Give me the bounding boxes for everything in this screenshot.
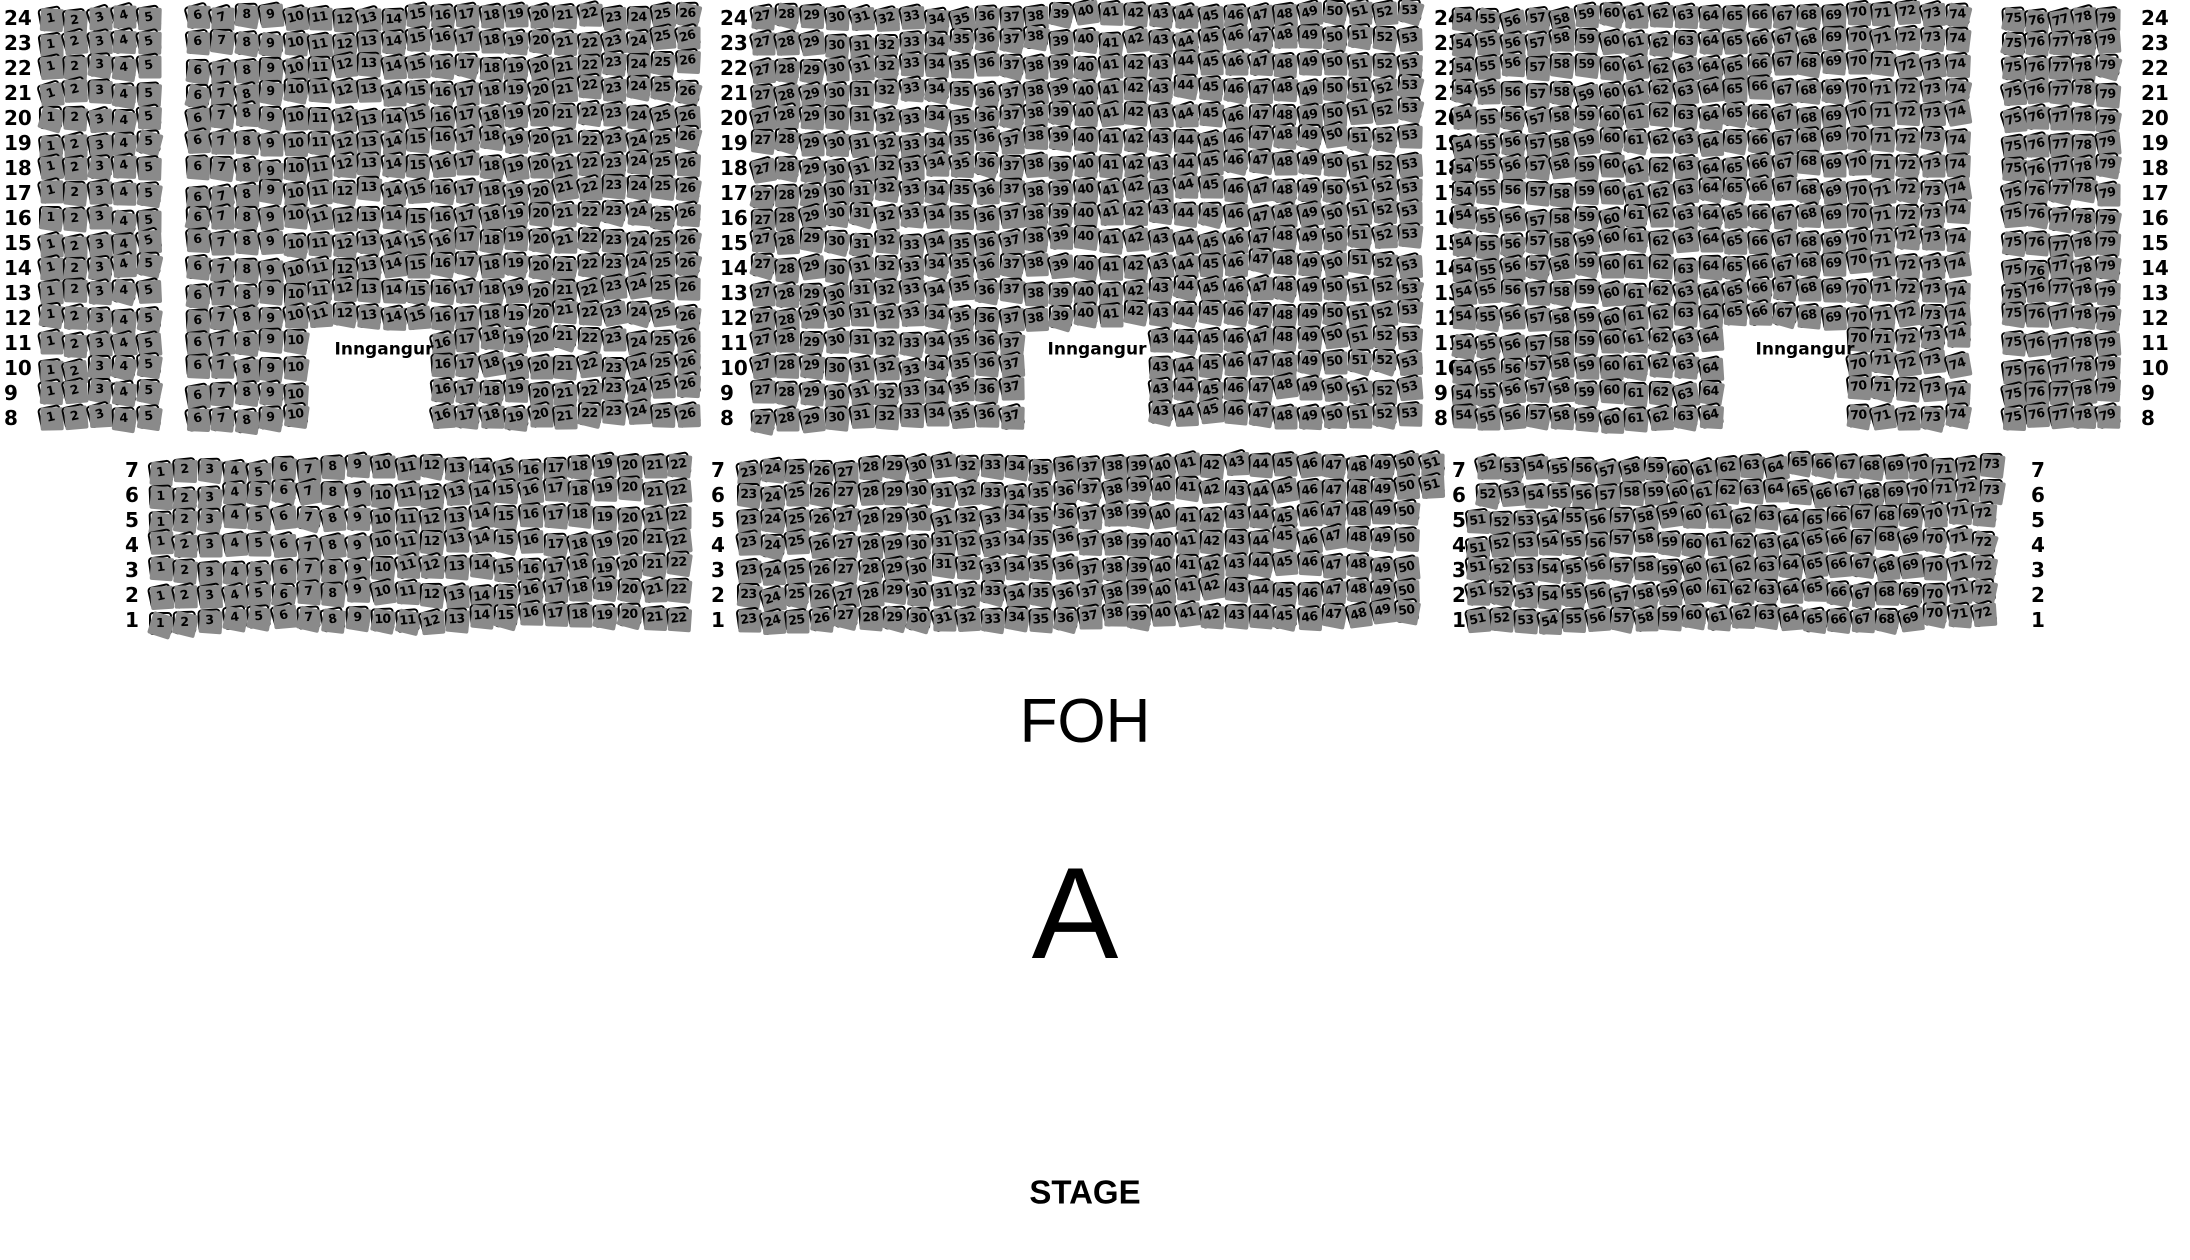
seat[interactable]: 53 bbox=[1397, 298, 1423, 324]
seat[interactable]: 1 bbox=[147, 555, 173, 581]
seat[interactable]: 44 bbox=[1172, 49, 1198, 75]
seat[interactable]: 73 bbox=[1918, 0, 1947, 28]
seat[interactable]: 74 bbox=[1944, 379, 1970, 405]
seat[interactable]: 17 bbox=[452, 123, 481, 152]
seat[interactable]: 40 bbox=[1149, 474, 1176, 501]
seat[interactable]: 24 bbox=[624, 199, 651, 226]
seat[interactable]: 17 bbox=[541, 576, 568, 603]
seat[interactable]: 6 bbox=[183, 405, 211, 433]
seat[interactable]: 28 bbox=[856, 479, 883, 506]
seat[interactable]: 10 bbox=[283, 156, 306, 179]
seat[interactable]: 19 bbox=[503, 56, 528, 81]
seat[interactable]: 79 bbox=[2094, 254, 2120, 280]
seat[interactable]: 42 bbox=[1122, 199, 1148, 225]
seat[interactable]: 49 bbox=[1296, 148, 1323, 175]
seat[interactable]: 24 bbox=[626, 300, 650, 324]
seat[interactable]: 62 bbox=[1646, 403, 1675, 432]
seat[interactable]: 11 bbox=[307, 231, 333, 257]
seat[interactable]: 78 bbox=[2071, 78, 2096, 103]
seat[interactable]: 23 bbox=[601, 399, 625, 423]
seat[interactable]: 37 bbox=[1077, 455, 1102, 480]
seat[interactable]: 46 bbox=[1222, 350, 1249, 377]
seat[interactable]: 78 bbox=[2072, 177, 2096, 201]
seat[interactable]: 27 bbox=[832, 503, 860, 531]
seat[interactable]: 26 bbox=[675, 228, 700, 253]
seat[interactable]: 35 bbox=[947, 274, 975, 302]
seat[interactable]: 48 bbox=[1272, 149, 1299, 176]
seat[interactable]: 25 bbox=[651, 329, 675, 353]
seat[interactable]: 45 bbox=[1271, 549, 1299, 577]
seat[interactable]: 77 bbox=[2048, 380, 2073, 405]
seat[interactable]: 25 bbox=[784, 608, 810, 634]
seat[interactable]: 47 bbox=[1247, 350, 1273, 376]
seat[interactable]: 6 bbox=[184, 254, 210, 280]
seat[interactable]: 65 bbox=[1801, 575, 1829, 603]
seat[interactable]: 28 bbox=[773, 228, 801, 256]
seat[interactable]: 56 bbox=[1501, 179, 1525, 203]
seat[interactable]: 11 bbox=[306, 5, 332, 31]
seat[interactable]: 48 bbox=[1273, 275, 1297, 299]
seat[interactable]: 21 bbox=[553, 325, 576, 348]
seat[interactable]: 59 bbox=[1643, 457, 1666, 480]
seat[interactable]: 50 bbox=[1393, 553, 1421, 581]
seat[interactable]: 22 bbox=[667, 578, 691, 602]
seat[interactable]: 69 bbox=[1882, 453, 1909, 480]
seat[interactable]: 16 bbox=[517, 527, 544, 554]
seat[interactable]: 4 bbox=[221, 480, 247, 506]
seat[interactable]: 36 bbox=[973, 50, 999, 76]
seat[interactable]: 36 bbox=[974, 378, 998, 402]
seat[interactable]: 67 bbox=[1849, 606, 1876, 633]
seat[interactable]: 60 bbox=[1598, 327, 1624, 353]
seat[interactable]: 24 bbox=[758, 559, 786, 587]
seat[interactable]: 73 bbox=[1918, 150, 1946, 178]
seat[interactable]: 59 bbox=[1574, 252, 1598, 276]
seat[interactable]: 30 bbox=[824, 405, 849, 430]
seat[interactable]: 77 bbox=[2046, 330, 2074, 358]
seat[interactable]: 9 bbox=[258, 280, 283, 305]
seat[interactable]: 49 bbox=[1296, 78, 1324, 106]
seat[interactable]: 45 bbox=[1197, 48, 1224, 75]
seat[interactable]: 63 bbox=[1674, 104, 1697, 127]
seat[interactable]: 72 bbox=[1895, 127, 1920, 152]
seat[interactable]: 43 bbox=[1148, 301, 1173, 326]
seat[interactable]: 78 bbox=[2072, 208, 2096, 232]
seat[interactable]: 41 bbox=[1098, 127, 1123, 152]
seat[interactable]: 29 bbox=[882, 605, 906, 629]
seat[interactable]: 14 bbox=[469, 457, 494, 482]
seat[interactable]: 29 bbox=[882, 479, 907, 504]
seat[interactable]: 2 bbox=[62, 106, 86, 130]
seat[interactable]: 26 bbox=[807, 532, 835, 560]
seat[interactable]: 4 bbox=[109, 329, 138, 358]
seat[interactable]: 68 bbox=[1875, 607, 1898, 630]
seat[interactable]: 56 bbox=[1584, 581, 1612, 609]
seat[interactable]: 54 bbox=[1537, 584, 1561, 608]
seat[interactable]: 26 bbox=[675, 125, 698, 148]
seat[interactable]: 9 bbox=[259, 57, 282, 80]
seat[interactable]: 77 bbox=[2046, 355, 2074, 383]
seat[interactable]: 12 bbox=[420, 583, 443, 606]
seat[interactable]: 43 bbox=[1147, 101, 1173, 127]
seat[interactable]: 43 bbox=[1224, 528, 1248, 552]
seat[interactable]: 40 bbox=[1073, 302, 1098, 327]
seat[interactable]: 27 bbox=[749, 378, 775, 404]
seat[interactable]: 42 bbox=[1122, 126, 1148, 152]
seat[interactable]: 9 bbox=[344, 576, 372, 604]
seat[interactable]: 35 bbox=[1028, 554, 1054, 580]
seat[interactable]: 49 bbox=[1296, 223, 1324, 251]
seat[interactable]: 26 bbox=[674, 48, 700, 74]
seat[interactable]: 40 bbox=[1072, 100, 1099, 127]
seat[interactable]: 49 bbox=[1296, 402, 1323, 429]
seat[interactable]: 11 bbox=[393, 528, 420, 555]
seat[interactable]: 77 bbox=[2046, 402, 2074, 430]
seat[interactable]: 21 bbox=[551, 200, 578, 227]
seat[interactable]: 4 bbox=[222, 560, 246, 584]
seat[interactable]: 20 bbox=[526, 76, 555, 105]
seat[interactable]: 51 bbox=[1346, 98, 1374, 126]
seat[interactable]: 44 bbox=[1248, 452, 1273, 477]
seat[interactable]: 58 bbox=[1548, 403, 1575, 430]
seat[interactable]: 74 bbox=[1945, 402, 1970, 427]
seat[interactable]: 55 bbox=[1475, 382, 1499, 406]
seat[interactable]: 39 bbox=[1048, 53, 1074, 79]
seat[interactable]: 32 bbox=[875, 404, 899, 428]
seat[interactable]: 58 bbox=[1548, 25, 1576, 53]
seat[interactable]: 23 bbox=[602, 200, 625, 223]
seat[interactable]: 28 bbox=[775, 156, 799, 180]
seat[interactable]: 59 bbox=[1574, 179, 1599, 204]
seat[interactable]: 71 bbox=[1931, 477, 1956, 502]
seat[interactable]: 5 bbox=[135, 4, 162, 31]
seat[interactable]: 75 bbox=[2000, 301, 2025, 326]
seat[interactable]: 2 bbox=[63, 181, 87, 205]
seat[interactable]: 64 bbox=[1698, 203, 1723, 228]
seat[interactable]: 34 bbox=[925, 105, 948, 128]
seat[interactable]: 47 bbox=[1247, 401, 1272, 426]
seat[interactable]: 22 bbox=[577, 227, 600, 250]
seat[interactable]: 37 bbox=[1076, 603, 1103, 630]
seat[interactable]: 51 bbox=[1346, 51, 1373, 78]
seat[interactable]: 31 bbox=[849, 278, 873, 302]
seat[interactable]: 30 bbox=[822, 129, 850, 157]
seat[interactable]: 15 bbox=[493, 478, 519, 504]
seat[interactable]: 57 bbox=[1524, 305, 1551, 332]
seat[interactable]: 34 bbox=[924, 31, 948, 55]
seat[interactable]: 52 bbox=[1475, 483, 1499, 507]
seat[interactable]: 37 bbox=[999, 27, 1023, 51]
seat[interactable]: 13 bbox=[444, 554, 469, 579]
seat[interactable]: 25 bbox=[650, 274, 676, 300]
seat[interactable]: 18 bbox=[479, 228, 503, 252]
seat[interactable]: 47 bbox=[1248, 124, 1271, 147]
seat[interactable]: 22 bbox=[577, 327, 600, 350]
seat[interactable]: 49 bbox=[1298, 124, 1321, 147]
seat[interactable]: 7 bbox=[210, 29, 233, 52]
seat[interactable]: 20 bbox=[617, 602, 641, 626]
seat[interactable]: 28 bbox=[857, 532, 884, 559]
seat[interactable]: 18 bbox=[478, 154, 503, 179]
seat[interactable]: 19 bbox=[501, 153, 529, 181]
seat[interactable]: 5 bbox=[246, 530, 272, 556]
seat[interactable]: 64 bbox=[1698, 176, 1723, 201]
seat[interactable]: 11 bbox=[393, 454, 420, 481]
seat[interactable]: 4 bbox=[111, 209, 135, 233]
seat[interactable]: 11 bbox=[306, 255, 334, 283]
seat[interactable]: 39 bbox=[1047, 251, 1075, 279]
seat[interactable]: 36 bbox=[975, 307, 998, 330]
seat[interactable]: 12 bbox=[330, 77, 358, 105]
seat[interactable]: 62 bbox=[1729, 577, 1755, 603]
seat[interactable]: 11 bbox=[307, 279, 332, 304]
seat[interactable]: 61 bbox=[1622, 102, 1649, 129]
seat[interactable]: 21 bbox=[640, 575, 669, 604]
seat[interactable]: 22 bbox=[576, 378, 603, 405]
seat[interactable]: 30 bbox=[825, 230, 849, 254]
seat[interactable]: 70 bbox=[1845, 373, 1871, 399]
seat[interactable]: 67 bbox=[1770, 151, 1798, 179]
seat[interactable]: 41 bbox=[1173, 450, 1201, 478]
seat[interactable]: 21 bbox=[552, 403, 578, 429]
seat[interactable]: 2 bbox=[61, 154, 88, 181]
seat[interactable]: 25 bbox=[649, 23, 677, 51]
seat[interactable]: 64 bbox=[1696, 28, 1723, 55]
seat[interactable]: 32 bbox=[873, 203, 900, 230]
seat[interactable]: 1 bbox=[36, 378, 63, 405]
seat[interactable]: 3 bbox=[197, 609, 221, 633]
seat[interactable]: 65 bbox=[1801, 606, 1828, 633]
seat[interactable]: 20 bbox=[617, 475, 642, 500]
seat[interactable]: 45 bbox=[1197, 149, 1224, 176]
seat[interactable]: 62 bbox=[1649, 381, 1672, 404]
seat[interactable]: 31 bbox=[930, 480, 956, 506]
seat[interactable]: 10 bbox=[282, 401, 308, 427]
seat[interactable]: 46 bbox=[1223, 300, 1248, 325]
seat[interactable]: 43 bbox=[1147, 198, 1173, 224]
seat[interactable]: 69 bbox=[1897, 552, 1925, 580]
seat[interactable]: 37 bbox=[999, 178, 1023, 202]
seat[interactable]: 5 bbox=[135, 155, 161, 181]
seat[interactable]: 69 bbox=[1896, 525, 1925, 554]
seat[interactable]: 1 bbox=[146, 583, 173, 610]
seat[interactable]: 37 bbox=[997, 351, 1025, 379]
seat[interactable]: 72 bbox=[1970, 577, 1996, 603]
seat[interactable]: 31 bbox=[930, 580, 957, 607]
seat[interactable]: 74 bbox=[1944, 197, 1969, 222]
seat[interactable]: 73 bbox=[1918, 251, 1947, 280]
seat[interactable]: 71 bbox=[1869, 275, 1896, 302]
seat[interactable]: 78 bbox=[2071, 355, 2096, 380]
seat[interactable]: 55 bbox=[1474, 356, 1502, 384]
seat[interactable]: 23 bbox=[735, 557, 762, 584]
seat[interactable]: 51 bbox=[1348, 249, 1372, 273]
seat[interactable]: 38 bbox=[1023, 226, 1048, 251]
seat[interactable]: 6 bbox=[185, 59, 208, 82]
seat[interactable]: 61 bbox=[1624, 406, 1649, 431]
seat[interactable]: 56 bbox=[1584, 507, 1611, 534]
seat[interactable]: 2 bbox=[61, 403, 88, 430]
seat[interactable]: 19 bbox=[591, 475, 618, 502]
seat[interactable]: 46 bbox=[1223, 177, 1248, 202]
seat[interactable]: 1 bbox=[147, 528, 174, 555]
seat[interactable]: 12 bbox=[331, 231, 358, 258]
seat[interactable]: 49 bbox=[1370, 499, 1396, 525]
seat[interactable]: 21 bbox=[641, 453, 667, 479]
seat[interactable]: 66 bbox=[1746, 275, 1773, 302]
seat[interactable]: 72 bbox=[1893, 51, 1922, 80]
seat[interactable]: 42 bbox=[1199, 506, 1224, 531]
seat[interactable]: 34 bbox=[923, 400, 949, 426]
seat[interactable]: 35 bbox=[948, 351, 975, 378]
seat[interactable]: 13 bbox=[357, 176, 381, 200]
seat[interactable]: 67 bbox=[1771, 77, 1798, 104]
seat[interactable]: 64 bbox=[1697, 303, 1722, 328]
seat[interactable]: 70 bbox=[1921, 500, 1950, 529]
seat[interactable]: 63 bbox=[1672, 2, 1699, 29]
seat[interactable]: 62 bbox=[1728, 602, 1756, 630]
seat[interactable]: 66 bbox=[1746, 252, 1773, 279]
seat[interactable]: 27 bbox=[834, 480, 858, 504]
seat[interactable]: 27 bbox=[748, 28, 776, 56]
seat[interactable]: 73 bbox=[1919, 202, 1945, 228]
seat[interactable]: 4 bbox=[110, 179, 137, 206]
seat[interactable]: 3 bbox=[197, 458, 221, 482]
seat[interactable]: 54 bbox=[1522, 482, 1548, 508]
seat[interactable]: 47 bbox=[1322, 603, 1346, 627]
seat[interactable]: 78 bbox=[2070, 401, 2098, 429]
seat[interactable]: 72 bbox=[1895, 327, 1921, 353]
seat[interactable]: 3 bbox=[87, 52, 112, 77]
seat[interactable]: 42 bbox=[1123, 76, 1147, 100]
seat[interactable]: 20 bbox=[616, 529, 643, 556]
seat[interactable]: 56 bbox=[1585, 531, 1609, 555]
seat[interactable]: 50 bbox=[1323, 76, 1347, 100]
seat[interactable]: 53 bbox=[1396, 25, 1423, 52]
seat[interactable]: 66 bbox=[1825, 525, 1853, 553]
seat[interactable]: 62 bbox=[1647, 351, 1674, 378]
seat[interactable]: 54 bbox=[1451, 56, 1475, 80]
seat[interactable]: 46 bbox=[1296, 549, 1322, 575]
seat[interactable]: 25 bbox=[783, 528, 811, 556]
seat[interactable]: 65 bbox=[1723, 177, 1746, 200]
seat[interactable]: 29 bbox=[799, 3, 824, 28]
seat[interactable]: 2 bbox=[172, 558, 197, 583]
seat[interactable]: 57 bbox=[1525, 181, 1548, 204]
seat[interactable]: 56 bbox=[1498, 377, 1527, 406]
seat[interactable]: 68 bbox=[1796, 178, 1821, 203]
seat[interactable]: 52 bbox=[1371, 299, 1399, 327]
seat[interactable]: 61 bbox=[1622, 77, 1651, 106]
seat[interactable]: 57 bbox=[1525, 56, 1549, 80]
seat[interactable]: 59 bbox=[1575, 28, 1598, 51]
seat[interactable]: 47 bbox=[1320, 577, 1347, 604]
seat[interactable]: 12 bbox=[331, 205, 357, 231]
seat[interactable]: 45 bbox=[1197, 327, 1224, 354]
seat[interactable]: 28 bbox=[857, 454, 883, 480]
seat[interactable]: 58 bbox=[1550, 81, 1573, 104]
seat[interactable]: 1 bbox=[148, 484, 172, 508]
seat[interactable]: 6 bbox=[185, 353, 210, 378]
seat[interactable]: 17 bbox=[454, 327, 480, 353]
seat[interactable]: 8 bbox=[321, 480, 345, 504]
seat[interactable]: 28 bbox=[775, 206, 800, 231]
seat[interactable]: 60 bbox=[1680, 502, 1707, 529]
seat[interactable]: 5 bbox=[134, 277, 161, 304]
seat[interactable]: 15 bbox=[405, 253, 431, 279]
seat[interactable]: 28 bbox=[775, 3, 799, 27]
seat[interactable]: 48 bbox=[1345, 454, 1372, 481]
seat[interactable]: 33 bbox=[899, 233, 924, 258]
seat[interactable]: 48 bbox=[1273, 304, 1296, 327]
seat[interactable]: 34 bbox=[1003, 555, 1029, 581]
seat[interactable]: 24 bbox=[626, 75, 650, 99]
seat[interactable]: 30 bbox=[822, 326, 850, 354]
seat[interactable]: 27 bbox=[748, 226, 775, 253]
seat[interactable]: 43 bbox=[1224, 603, 1248, 627]
seat[interactable]: 54 bbox=[1450, 257, 1476, 283]
seat[interactable]: 55 bbox=[1546, 456, 1573, 483]
seat[interactable]: 49 bbox=[1296, 0, 1324, 26]
seat[interactable]: 15 bbox=[404, 1, 431, 28]
seat[interactable]: 28 bbox=[773, 101, 801, 129]
seat[interactable]: 64 bbox=[1777, 604, 1805, 632]
seat[interactable]: 60 bbox=[1597, 279, 1625, 307]
seat[interactable]: 31 bbox=[848, 354, 875, 381]
seat[interactable]: 58 bbox=[1548, 306, 1575, 333]
seat[interactable]: 34 bbox=[924, 379, 949, 404]
seat[interactable]: 63 bbox=[1673, 301, 1697, 325]
seat[interactable]: 25 bbox=[785, 459, 809, 483]
seat[interactable]: 43 bbox=[1148, 127, 1172, 151]
seat[interactable]: 41 bbox=[1097, 52, 1124, 79]
seat[interactable]: 65 bbox=[1722, 101, 1748, 127]
seat[interactable]: 57 bbox=[1610, 529, 1634, 553]
seat[interactable]: 60 bbox=[1597, 225, 1625, 253]
seat[interactable]: 48 bbox=[1271, 22, 1300, 51]
seat[interactable]: 36 bbox=[973, 125, 1000, 152]
seat[interactable]: 72 bbox=[1895, 252, 1921, 278]
seat[interactable]: 43 bbox=[1224, 480, 1247, 503]
seat[interactable]: 39 bbox=[1049, 101, 1073, 125]
seat[interactable]: 55 bbox=[1476, 235, 1500, 259]
seat[interactable]: 3 bbox=[196, 532, 222, 558]
seat[interactable]: 68 bbox=[1795, 201, 1823, 229]
seat[interactable]: 31 bbox=[847, 3, 876, 32]
seat[interactable]: 72 bbox=[1970, 500, 1997, 527]
seat[interactable]: 52 bbox=[1372, 325, 1396, 349]
seat[interactable]: 26 bbox=[673, 22, 701, 50]
seat[interactable]: 72 bbox=[1894, 404, 1921, 431]
seat[interactable]: 23 bbox=[600, 150, 626, 176]
seat[interactable]: 47 bbox=[1246, 49, 1274, 77]
seat[interactable]: 35 bbox=[1029, 530, 1053, 554]
seat[interactable]: 49 bbox=[1369, 526, 1395, 552]
seat[interactable]: 7 bbox=[208, 279, 235, 306]
seat[interactable]: 30 bbox=[823, 55, 851, 83]
seat[interactable]: 9 bbox=[343, 503, 371, 531]
seat[interactable]: 28 bbox=[775, 184, 799, 208]
seat[interactable]: 1 bbox=[36, 176, 64, 204]
seat[interactable]: 26 bbox=[808, 605, 835, 632]
seat[interactable]: 73 bbox=[1921, 126, 1944, 149]
seat[interactable]: 46 bbox=[1222, 275, 1249, 302]
seat[interactable]: 70 bbox=[1922, 555, 1948, 581]
seat[interactable]: 47 bbox=[1248, 248, 1272, 272]
seat[interactable]: 49 bbox=[1370, 477, 1394, 501]
seat[interactable]: 30 bbox=[906, 533, 931, 558]
seat[interactable]: 42 bbox=[1198, 476, 1226, 504]
